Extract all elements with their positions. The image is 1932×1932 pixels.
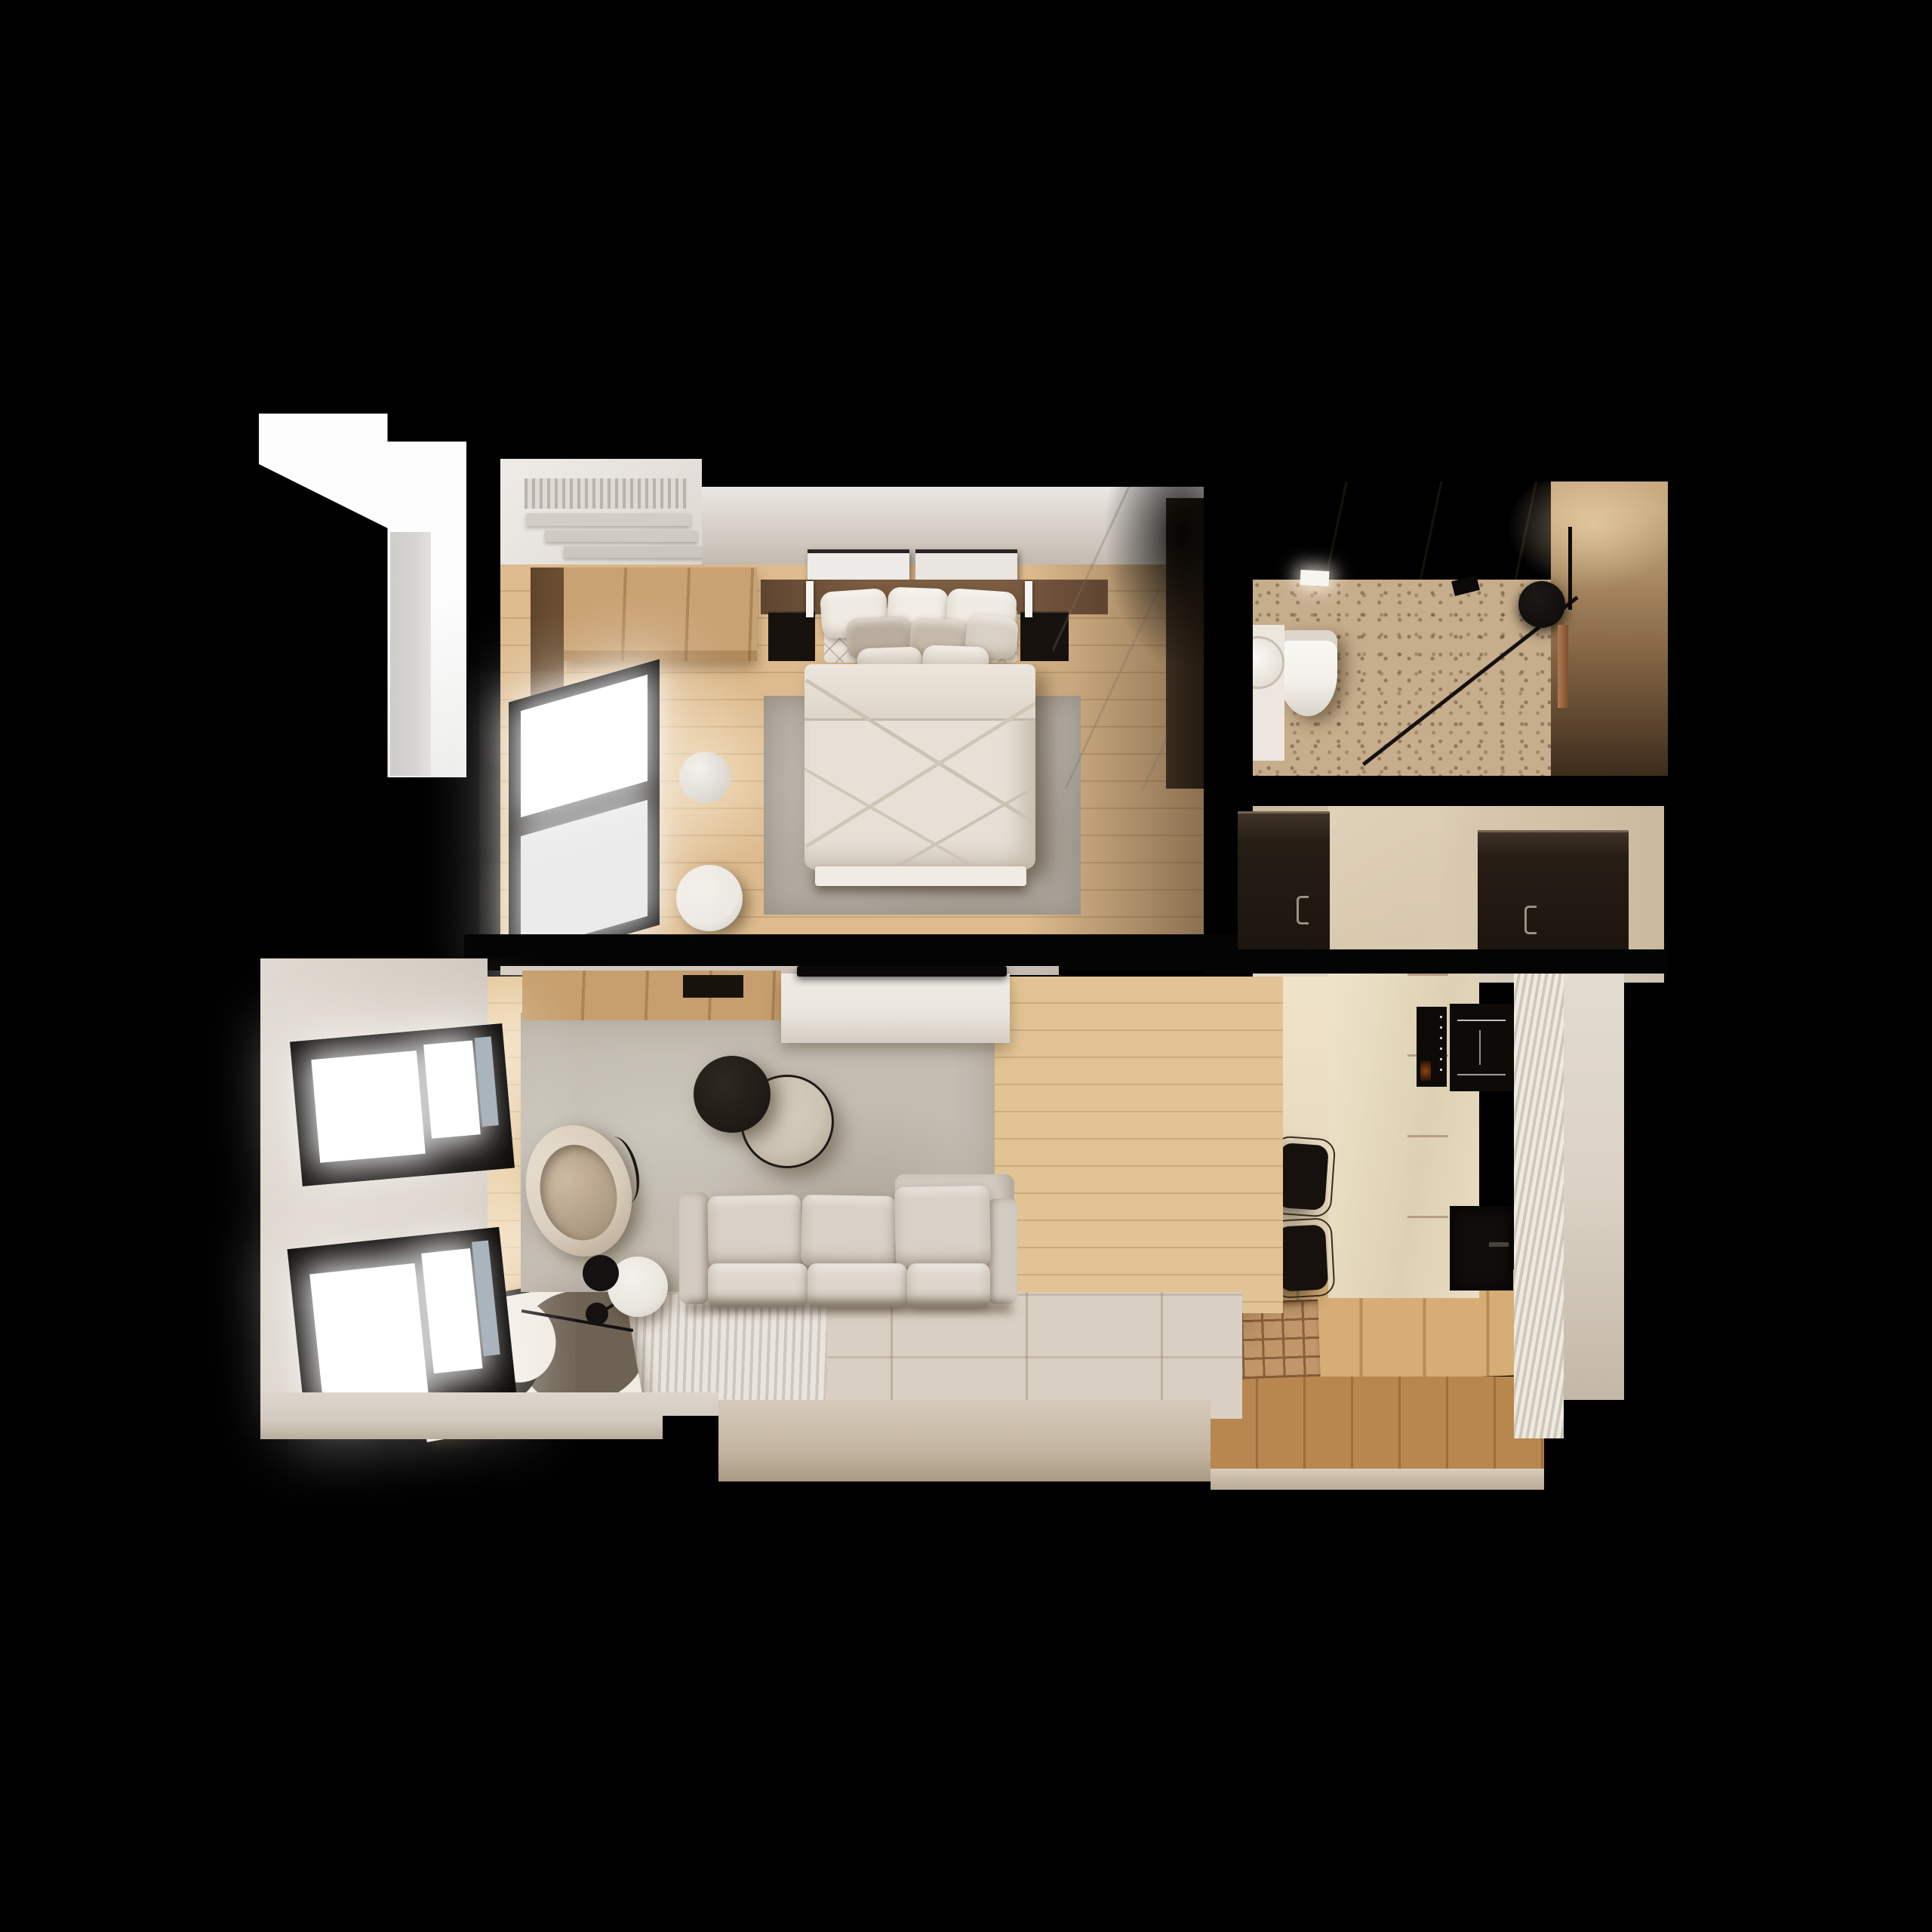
tv xyxy=(797,966,1007,977)
kitchen-right-wall xyxy=(1564,974,1624,1400)
living-window-upper xyxy=(290,1023,515,1186)
bottom-wall-notch xyxy=(663,1416,718,1440)
ceiling-beam xyxy=(545,531,697,542)
faucet xyxy=(1489,1242,1509,1247)
lamp-disc xyxy=(583,1255,619,1291)
sofa-shadow xyxy=(687,1301,1011,1313)
hallway-light-wedge xyxy=(1328,806,1479,951)
apartment-render xyxy=(0,0,1932,1932)
bedroom-window xyxy=(509,659,660,968)
fluted-panel xyxy=(1514,974,1564,1438)
sofa-arm-left xyxy=(679,1192,709,1304)
console-niche xyxy=(683,975,743,998)
sink-nook xyxy=(1450,1206,1513,1291)
terrace-pillar xyxy=(390,532,431,776)
nightstand-left xyxy=(768,611,815,661)
pendant-light-left xyxy=(806,581,814,617)
hall-kitchen-wall-band xyxy=(1204,949,1668,977)
built-in-oven xyxy=(1417,1007,1447,1087)
copper-pipe xyxy=(1558,625,1568,708)
media-console-wood xyxy=(522,971,781,1020)
bathroom xyxy=(1253,481,1668,776)
dining-chair xyxy=(1276,1143,1329,1211)
platform-bottom-wall xyxy=(1211,1469,1544,1490)
toilet xyxy=(1278,630,1337,716)
duvet-fold xyxy=(804,664,1035,721)
sofa-back-cushion xyxy=(707,1195,802,1267)
bedroom-oak-wardrobe xyxy=(564,568,757,661)
bed-foot-bench xyxy=(815,866,1026,886)
sofa-back-cushion xyxy=(894,1186,991,1267)
wall-light xyxy=(1300,570,1330,586)
shower-head xyxy=(1518,581,1565,628)
ceiling-beam xyxy=(526,513,691,526)
dining-chair xyxy=(1277,1224,1328,1291)
ac-diffuser xyxy=(525,478,688,509)
lamp-disc-small xyxy=(586,1303,608,1325)
bedroom-stool xyxy=(676,865,743,931)
hall-closet-right xyxy=(1478,830,1629,952)
bottom-wall-left xyxy=(260,1392,718,1439)
pendant-light-right xyxy=(1025,581,1032,617)
platform-front xyxy=(1211,1377,1544,1469)
bedroom-corner-shadow xyxy=(1057,453,1204,777)
ceiling-beam xyxy=(564,546,704,558)
hall-closet-left xyxy=(1238,811,1330,952)
bed-duvet xyxy=(804,664,1035,869)
media-console-white xyxy=(781,974,1010,1043)
induction-hob xyxy=(1450,1004,1513,1091)
sofa-arm-right xyxy=(987,1198,1017,1304)
bathroom-wall-glow xyxy=(1479,481,1668,632)
sphere-lamp xyxy=(679,752,731,803)
shower-arm xyxy=(1568,527,1572,610)
sofa-back-cushion xyxy=(801,1195,896,1267)
coffee-table-black xyxy=(694,1056,771,1133)
bottom-wall-middle xyxy=(718,1400,1211,1481)
sofa xyxy=(679,1174,1017,1310)
terrace xyxy=(259,414,466,777)
